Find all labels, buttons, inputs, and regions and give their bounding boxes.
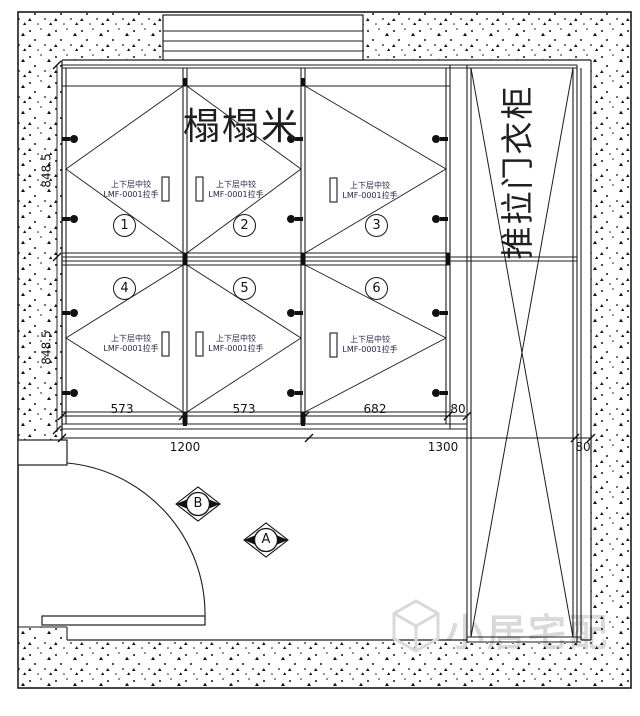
- hinge-label: 上下层中铰: [340, 181, 400, 191]
- hinge-label: 上下层中铰: [101, 180, 161, 190]
- handle-icon: [196, 177, 203, 201]
- handle-label: LMF-0001拉手: [101, 344, 161, 354]
- dim-cell3-width: 682: [350, 402, 400, 416]
- handle-label: LMF-0001拉手: [206, 190, 266, 200]
- hinge-label: 上下层中铰: [206, 180, 266, 190]
- handle-icon: [162, 332, 169, 356]
- cell-number-2: 2: [233, 214, 256, 237]
- marker-letter-b: B: [187, 493, 209, 515]
- dim-overall-1200: 1200: [160, 440, 210, 454]
- dim-row2-height: 848.5: [41, 320, 54, 376]
- hinge-label: 上下层中铰: [206, 334, 266, 344]
- wardrobe-label: 推拉门衣柜: [500, 82, 536, 262]
- watermark-logo-icon: [394, 601, 438, 651]
- handle-icon: [162, 177, 169, 201]
- dim-cell1-width: 573: [97, 402, 147, 416]
- cell-label-5: 上下层中铰 LMF-0001拉手: [206, 334, 266, 354]
- handle-icon: [330, 333, 337, 357]
- cell-label-2: 上下层中铰 LMF-0001拉手: [206, 180, 266, 200]
- handle-icons: [162, 177, 337, 357]
- door-leaf: [42, 616, 205, 625]
- tatami-title: 榻榻米: [183, 96, 300, 150]
- cell-label-4: 上下层中铰 LMF-0001拉手: [101, 334, 161, 354]
- cell-number-3: 3: [365, 214, 388, 237]
- handle-icon: [196, 332, 203, 356]
- window: [163, 15, 363, 60]
- hinge-label: 上下层中铰: [101, 334, 161, 344]
- hinge-icons: [62, 135, 448, 397]
- dim-overall-80: 80: [568, 440, 598, 454]
- cell-number-6: 6: [365, 277, 388, 300]
- floor-plan-drawing: 榻榻米 推拉门衣柜 1 2 3 4 5 6 上下层中铰 LMF-0001拉手 上…: [0, 0, 640, 716]
- cell-number-4: 4: [113, 277, 136, 300]
- handle-label: LMF-0001拉手: [206, 344, 266, 354]
- door-swing: [42, 463, 205, 625]
- handle-icon: [330, 178, 337, 202]
- dim-overall-1300: 1300: [418, 440, 468, 454]
- dim-row1-height: 848.5: [41, 143, 54, 199]
- dim-cell2-width: 573: [219, 402, 269, 416]
- dim-gap-width: 80: [443, 402, 473, 416]
- door-jamb: [18, 440, 67, 465]
- marker-letter-a: A: [255, 529, 277, 551]
- handle-label: LMF-0001拉手: [340, 345, 400, 355]
- hinge-icon: [62, 389, 78, 397]
- cell-number-1: 1: [113, 214, 136, 237]
- hinge-icon: [62, 309, 78, 317]
- hinge-icon: [62, 215, 78, 223]
- handle-label: LMF-0001拉手: [101, 190, 161, 200]
- hinge-icon: [62, 135, 78, 143]
- handle-label: LMF-0001拉手: [340, 191, 400, 201]
- cell-label-6: 上下层中铰 LMF-0001拉手: [340, 335, 400, 355]
- cell-label-1: 上下层中铰 LMF-0001拉手: [101, 180, 161, 200]
- watermark-text: 小居宅配: [446, 602, 610, 657]
- cell-number-5: 5: [233, 277, 256, 300]
- cell-label-3: 上下层中铰 LMF-0001拉手: [340, 181, 400, 201]
- hinge-label: 上下层中铰: [340, 335, 400, 345]
